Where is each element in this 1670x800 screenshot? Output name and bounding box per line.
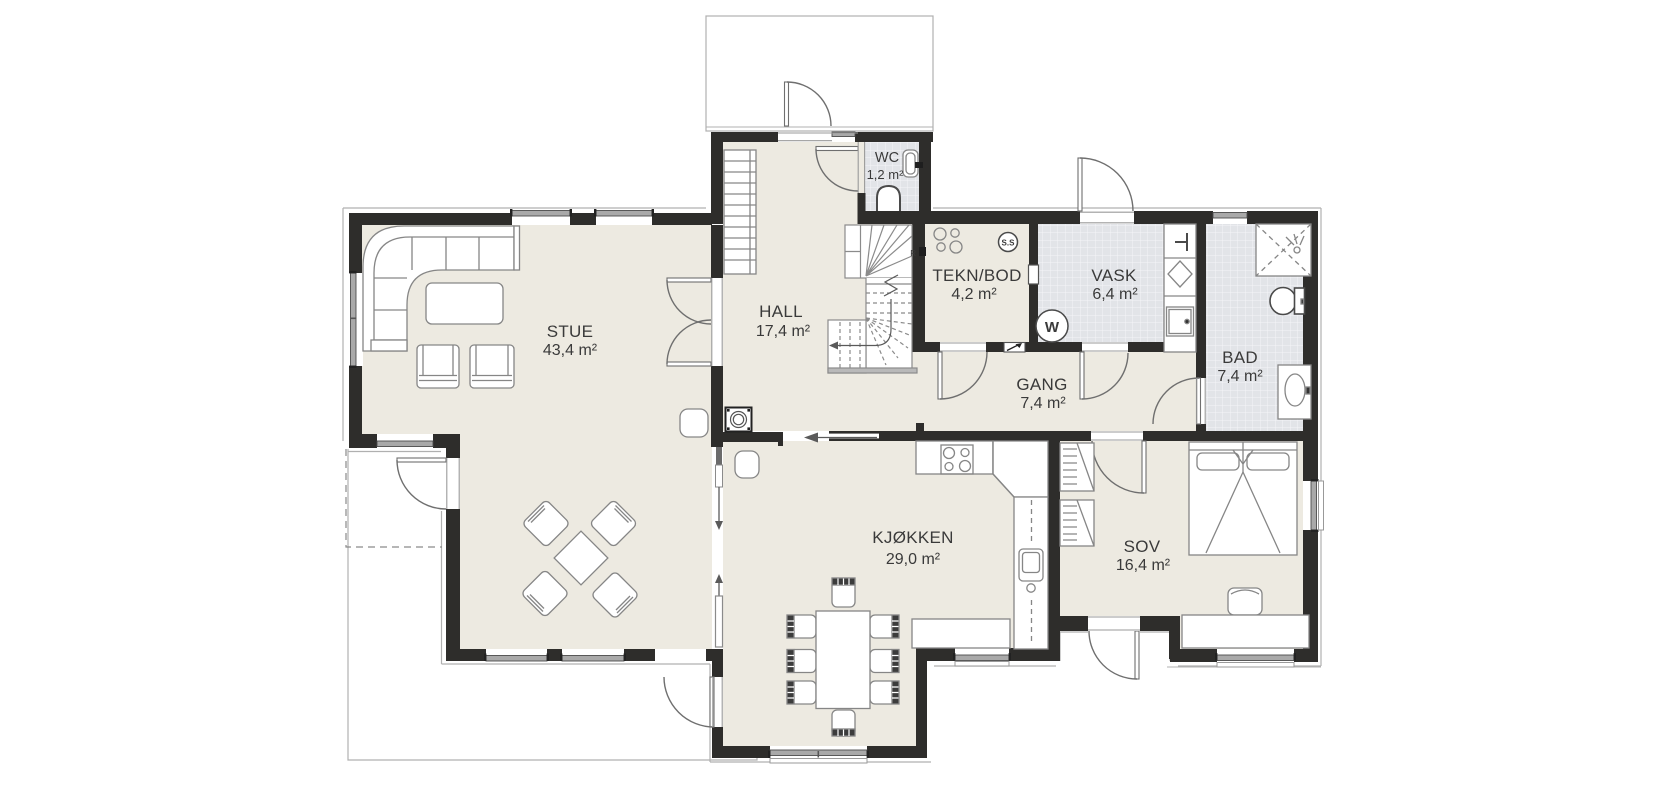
svg-text:R: R	[910, 249, 916, 258]
svg-text:GANG: GANG	[1016, 375, 1067, 394]
svg-text:4,2 m²: 4,2 m²	[951, 286, 997, 303]
svg-text:KJØKKEN: KJØKKEN	[872, 528, 953, 547]
svg-text:16,4 m²: 16,4 m²	[1116, 557, 1171, 574]
svg-text:S.S: S.S	[1002, 239, 1016, 248]
svg-text:17,4 m²: 17,4 m²	[756, 323, 811, 340]
svg-text:1,2 m²: 1,2 m²	[867, 167, 905, 182]
svg-text:43,4 m²: 43,4 m²	[543, 342, 598, 359]
svg-text:W: W	[1045, 319, 1060, 336]
svg-text:SOV: SOV	[1124, 537, 1161, 556]
svg-text:WC: WC	[875, 150, 899, 166]
svg-text:VASK: VASK	[1091, 266, 1137, 285]
svg-text:TEKN/BOD: TEKN/BOD	[932, 266, 1021, 285]
svg-text:7,4 m²: 7,4 m²	[1217, 368, 1263, 385]
svg-text:6,4 m²: 6,4 m²	[1092, 286, 1138, 303]
svg-text:STUE: STUE	[547, 322, 594, 341]
svg-text:7,4 m²: 7,4 m²	[1020, 395, 1066, 412]
svg-text:BAD: BAD	[1222, 348, 1258, 367]
svg-text:29,0 m²: 29,0 m²	[886, 551, 941, 568]
svg-text:HALL: HALL	[759, 302, 803, 321]
